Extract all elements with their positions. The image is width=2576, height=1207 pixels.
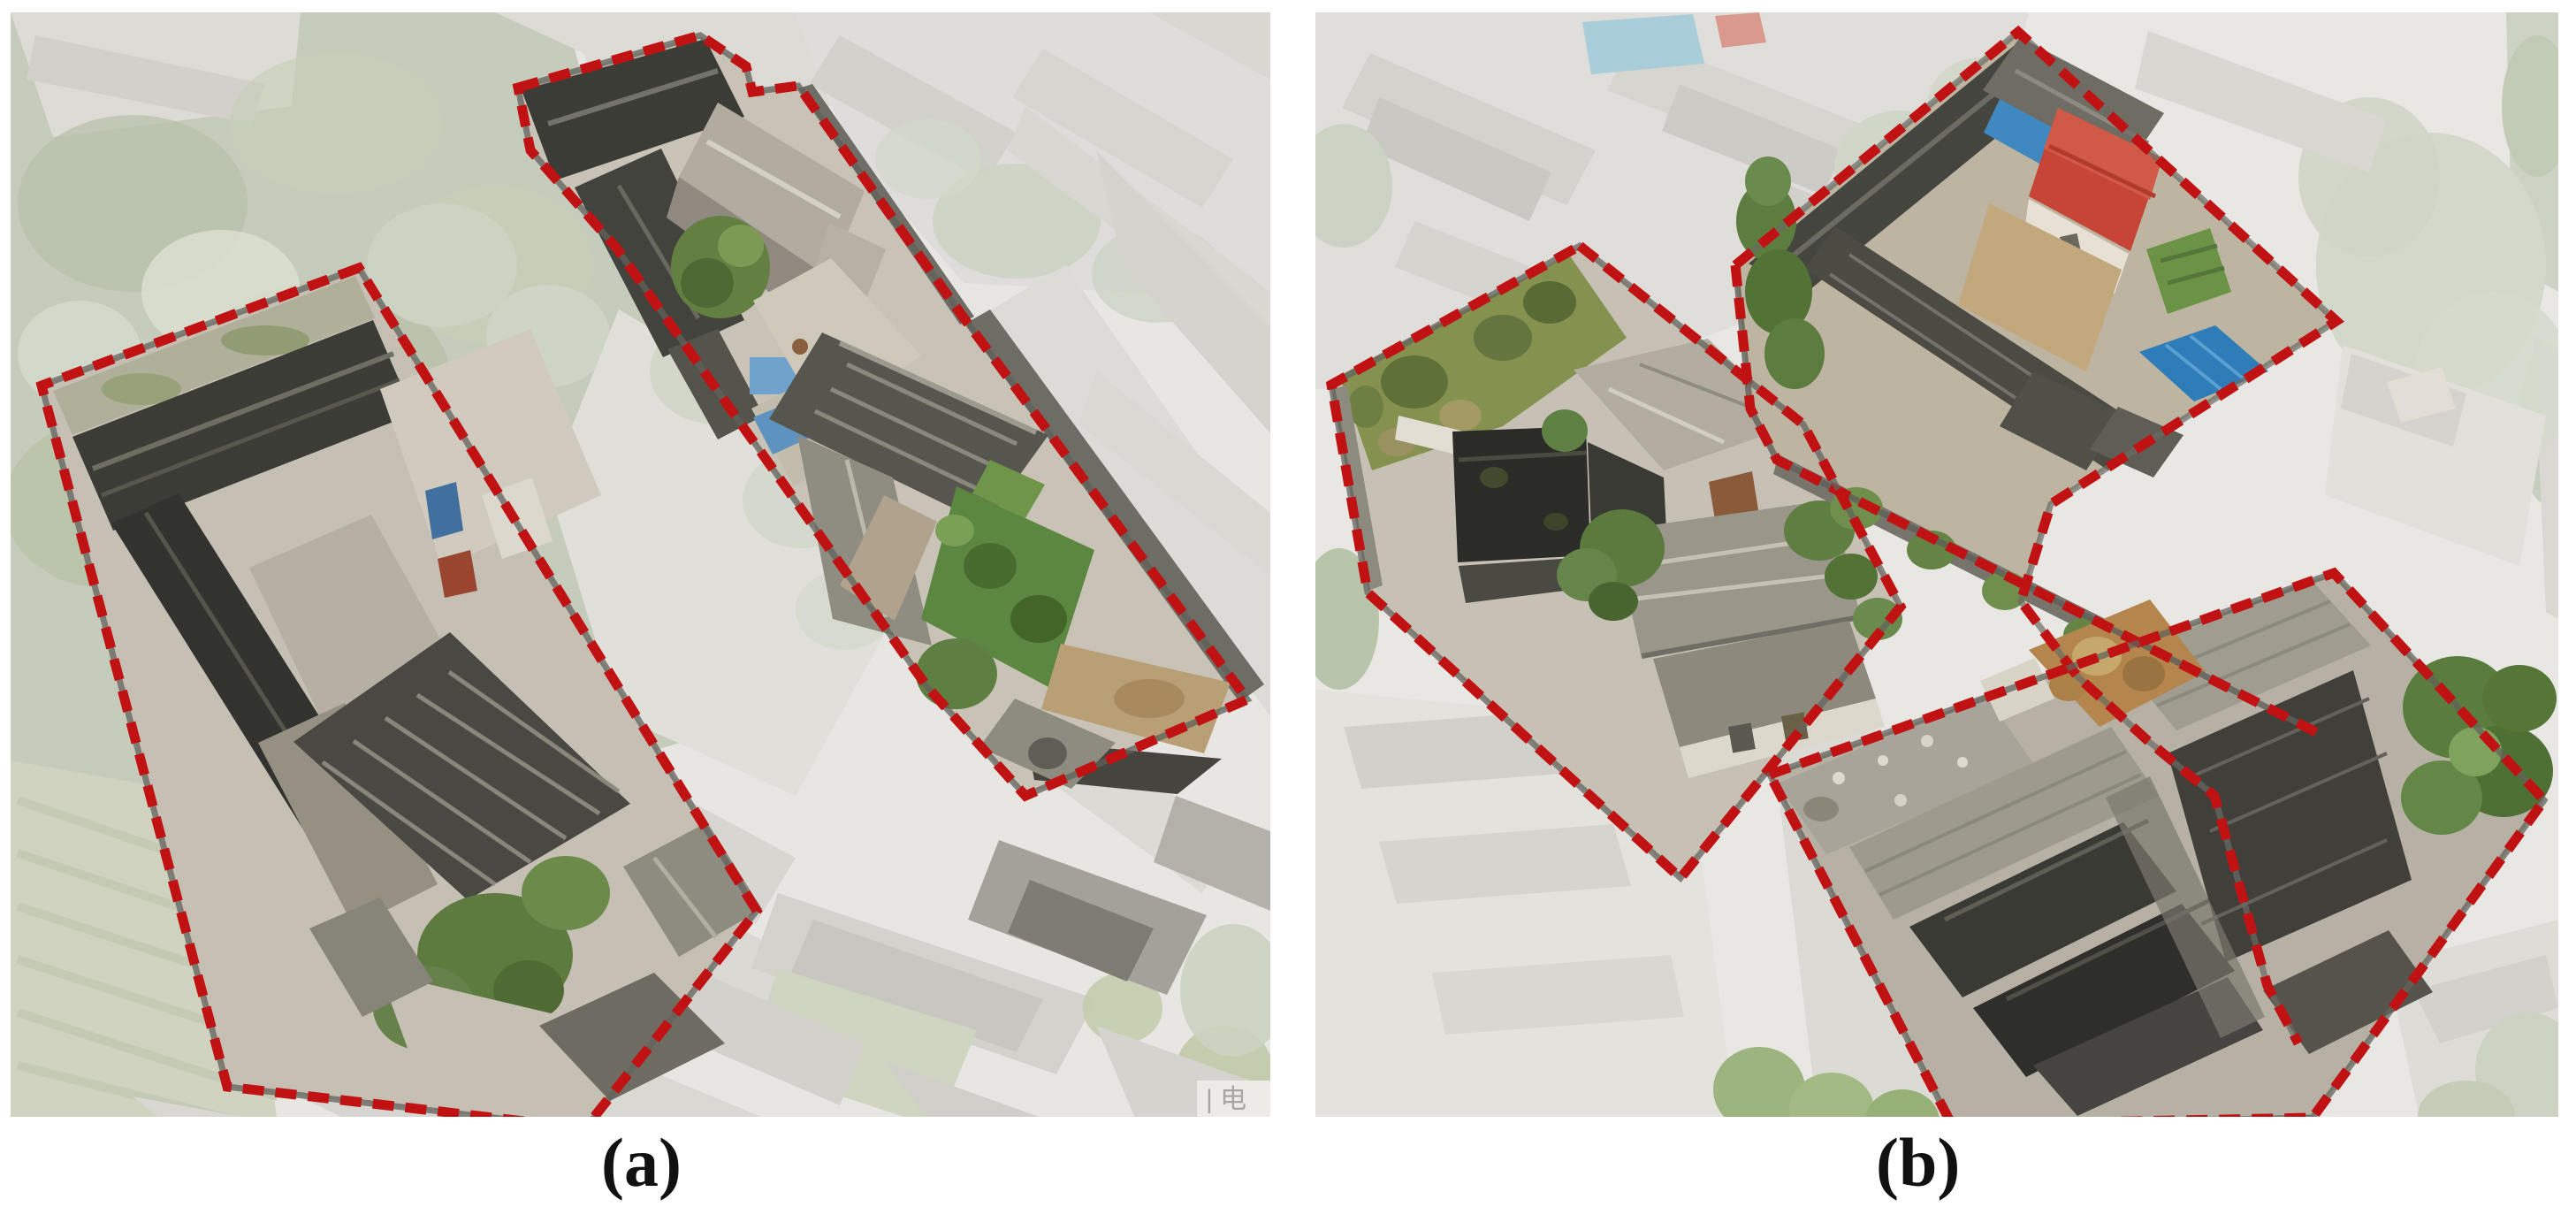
svg-text:| 电: | 电 <box>1206 1085 1246 1114</box>
